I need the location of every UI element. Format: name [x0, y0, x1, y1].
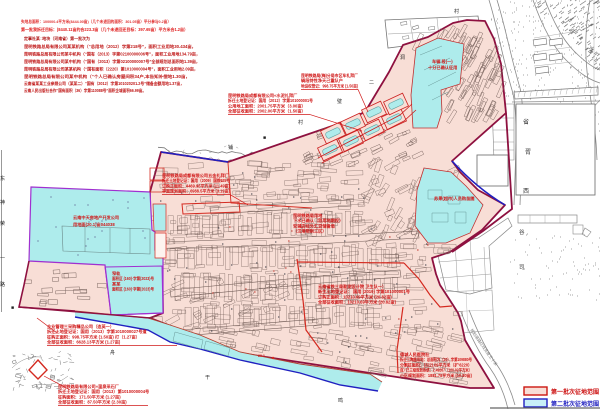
svg-text:二: 二	[369, 80, 374, 86]
svg-text:西: 西	[523, 188, 529, 195]
svg-text:定事社某□地块（河南省）第一批次为: 定事社某□地块（河南省）第一批次为	[23, 35, 90, 42]
svg-text:神: 神	[0, 199, 5, 206]
svg-text:十分已确认征用: 十分已确认征用	[428, 64, 457, 71]
svg-text:东: 东	[0, 175, 5, 182]
svg-text:平面规划面积：6988.5平方米 (3.19亩): 平面规划面积：6988.5平方米 (3.19亩)	[162, 188, 231, 195]
svg-text:璧: 璧	[337, 98, 342, 105]
svg-text:全部征收面积：2002.00平方米（1.50亩）: 全部征收面积：2002.00平方米（1.50亩）	[227, 108, 306, 115]
svg-text:谷: 谷	[519, 228, 525, 236]
svg-text:云南省某某工业参照公司（某某二）“国有（2012）字第101: 云南省某某工业参照公司（某某二）“国有（2012）字第101020201.2号”…	[24, 80, 184, 87]
svg-text:省: 省	[523, 118, 529, 126]
svg-text:云南人民出版社合作“国有面积（36）字第110088号”面积: 云南人民出版社合作“国有面积（36）字第110088号”面积企城面积66.99亩…	[24, 87, 146, 94]
svg-text:干: 干	[205, 375, 210, 381]
svg-text:第一批我拆迁目标：(8440.11亩约合223.3亩（几个未: 第一批我拆迁目标：(8440.11亩约合223.3亩（几个未退回还目标：397.…	[21, 26, 188, 33]
svg-text:20-1: 20-1	[258, 354, 265, 358]
svg-text:车辆 段(一): 车辆 段(一)	[432, 58, 453, 65]
svg-text:昆明铁路总局有限公司某中机构（“国有（2013）字第0210: 昆明铁路总局有限公司某中机构（“国有（2013）字第02100000006号”，…	[24, 51, 200, 58]
svg-text:舟: 舟	[110, 349, 115, 356]
svg-text:荣: 荣	[0, 220, 5, 227]
svg-text:地设权登记：998.75平方米 (1.50亩): 地设权登记：998.75平方米 (1.50亩)	[301, 82, 359, 89]
svg-text:一: 一	[0, 256, 5, 262]
svg-text:昆明铁路总局有限公司某中机构（“国有（2013）字第0210: 昆明铁路总局有限公司某中机构（“国有（2013）字第02100000007号”全…	[24, 58, 200, 65]
svg-text:第一批次征地范围: 第一批次征地范围	[550, 388, 599, 396]
svg-text:全部征收面积：10210.69平方米 (20.82亩): 全部征收面积：10210.69平方米 (20.82亩)	[317, 299, 397, 306]
svg-text:司: 司	[519, 264, 525, 271]
svg-text:云南中天房地产开发公司: 云南中天房地产开发公司	[73, 214, 119, 221]
svg-text:昆明铁路总局有限公司某某机构（“总用地（2012）字第218: 昆明铁路总局有限公司某某机构（“总用地（2012）字第218号”，面积工业用地3…	[24, 43, 196, 50]
svg-text:用地面(20.1)亩044038: 用地面(20.1)亩044038	[73, 221, 115, 228]
svg-text:■: ■	[11, 305, 14, 311]
svg-text:村: 村	[298, 119, 303, 126]
svg-text:胥: 胥	[525, 148, 531, 156]
svg-text:昆明铁路总局有限公司某中机构（“个人已确认房屋间积34户,本: 昆明铁路总局有限公司某中机构（“个人已确认房屋间积34户,本告知补偿地1.30亩…	[24, 73, 190, 80]
svg-text:小区规划面积：1881.78平方米 (10.80亩): 小区规划面积：1881.78平方米 (10.80亩)	[400, 372, 473, 379]
svg-text:全部征收面积：6628.13平方米 (1.27亩): 全部征收面积：6628.13平方米 (1.27亩)	[46, 339, 121, 346]
svg-text:面积区 (160)·字第(2023)号: 面积区 (160)·字第(2023)号	[112, 286, 154, 293]
svg-text:村: 村	[454, 8, 459, 15]
svg-text:铺: 铺	[228, 144, 233, 151]
svg-text:第二批次征地范围: 第二批次征地范围	[550, 400, 599, 408]
svg-text:■: ■	[263, 135, 266, 141]
svg-text:鸣: 鸣	[338, 397, 343, 404]
svg-text:昆明铁路总局有限公司某某机构（“国有面积（2220）第101: 昆明铁路总局有限公司某某机构（“国有面积（2220）第1010000004号”，…	[24, 66, 198, 73]
svg-text:洞: 洞	[400, 54, 405, 61]
svg-text:路: 路	[0, 281, 5, 288]
svg-text:（汉港限制三区）: （汉港限制三区）	[293, 228, 327, 235]
svg-text:苏果(超市)人员购苗圃: 苏果(超市)人员购苗圃	[434, 195, 474, 202]
svg-text:失地总面积：100000.4平方米(8444.00亩)（几个: 失地总面积：100000.4平方米(8444.00亩)（几个未退回的面积：301…	[21, 18, 171, 24]
svg-text:全部征收面积：87.50平方米 (2.30亩): 全部征收面积：87.50平方米 (2.30亩)	[57, 399, 127, 406]
